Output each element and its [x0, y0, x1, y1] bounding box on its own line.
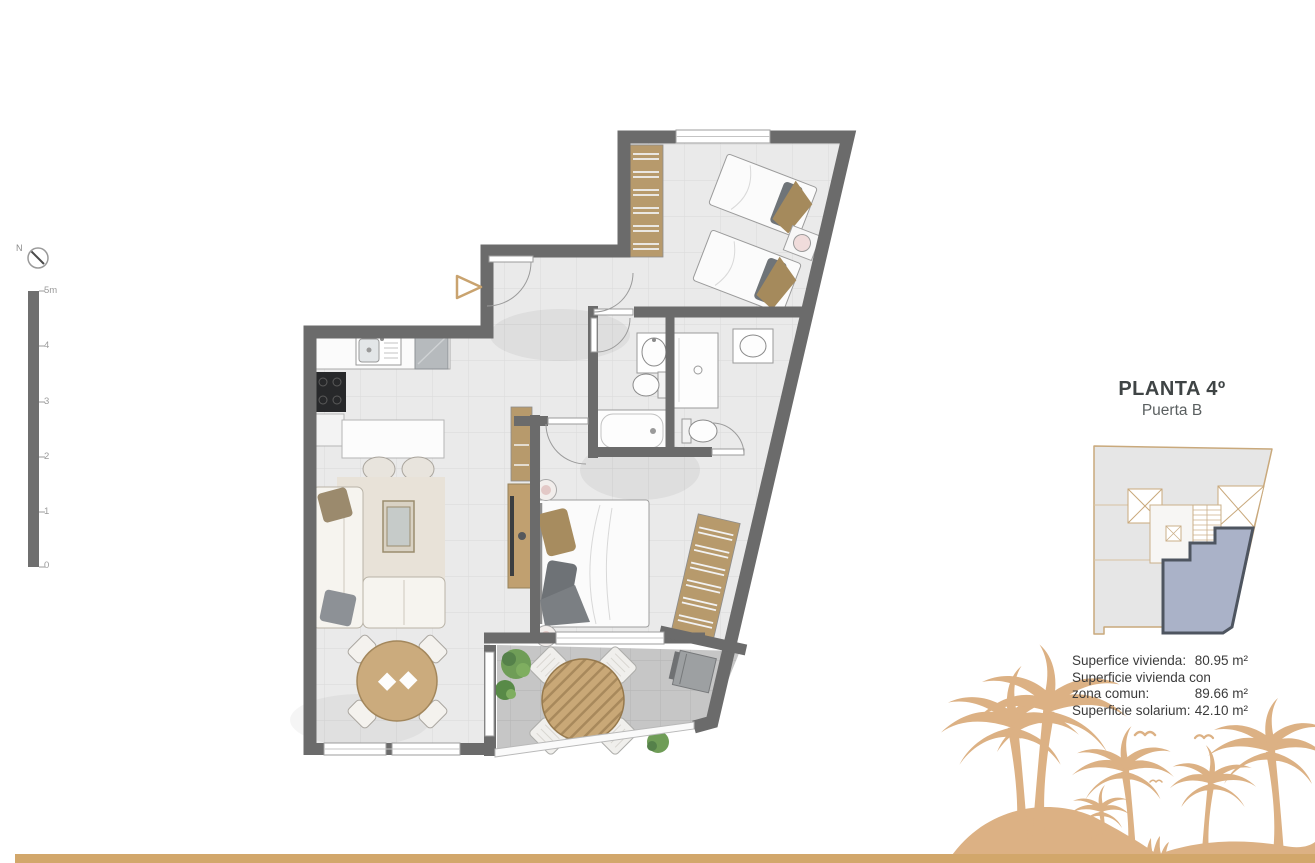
- area-row: Superficie vivienda con: [1072, 670, 1248, 687]
- bird-icon: [1135, 732, 1155, 735]
- tv-unit: [508, 484, 533, 588]
- entrance-arrow-icon: [457, 276, 481, 298]
- page: N 5m 4 3 2 1 0 PLANTA 4º Puerta B Superf…: [0, 0, 1315, 863]
- bird-icon: [1195, 735, 1213, 738]
- footer-accent-bar: [15, 854, 1315, 863]
- floor-plan: [0, 0, 1315, 863]
- area-label: Superficie solarium:: [1072, 703, 1191, 720]
- north-label: N: [16, 243, 23, 253]
- page-title: PLANTA 4º: [1072, 378, 1272, 401]
- scale-bar: [28, 291, 45, 567]
- scale-tick-label: 4: [44, 340, 70, 351]
- scale-tick-label: 3: [44, 396, 70, 407]
- scale-tick-label: 1: [44, 506, 70, 517]
- page-subtitle: Puerta B: [1072, 402, 1272, 420]
- surface-areas: Superfice vivienda: 80.95 m² Superficie …: [1072, 653, 1248, 719]
- north-compass: [28, 248, 48, 268]
- area-row: Superfice vivienda: 80.95 m²: [1072, 653, 1248, 670]
- area-row: zona comun: 89.66 m²: [1072, 686, 1248, 703]
- area-row: Superficie solarium: 42.10 m²: [1072, 703, 1248, 720]
- bird-icon: [1150, 780, 1162, 782]
- area-label: Superficie vivienda con: [1072, 670, 1211, 687]
- area-value: 80.95 m²: [1195, 653, 1248, 670]
- area-value: 89.66 m²: [1195, 686, 1248, 703]
- scale-tick-label: 5m: [44, 285, 70, 296]
- area-label: Superfice vivienda:: [1072, 653, 1186, 670]
- area-label: zona comun:: [1072, 686, 1149, 703]
- area-value: 42.10 m²: [1195, 703, 1248, 720]
- inset-plan: [1094, 446, 1272, 634]
- scale-tick-label: 2: [44, 451, 70, 462]
- scale-tick-label: 0: [44, 560, 70, 571]
